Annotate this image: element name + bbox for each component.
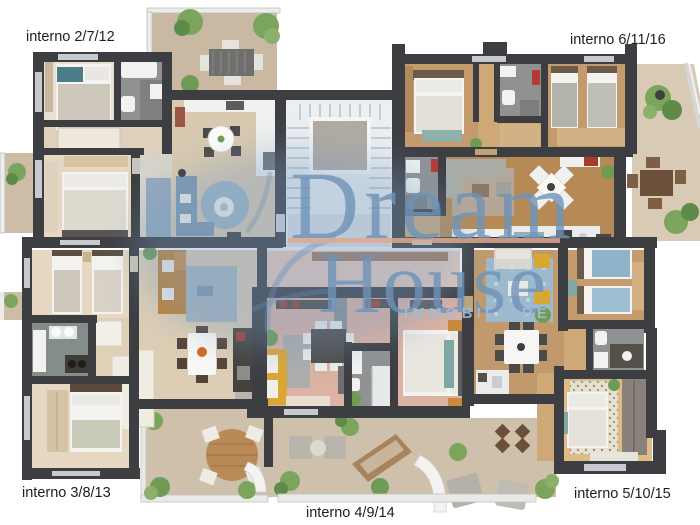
svg-text:interno 3/8/13: interno 3/8/13 xyxy=(22,485,111,501)
svg-text:interno 4/9/14: interno 4/9/14 xyxy=(306,505,395,521)
svg-text:interno 5/10/15: interno 5/10/15 xyxy=(574,486,671,502)
svg-text:IMMOBILIARE: IMMOBILIARE xyxy=(404,305,551,322)
svg-text:interno 6/11/16: interno 6/11/16 xyxy=(570,32,666,48)
svg-text:interno 2/7/12: interno 2/7/12 xyxy=(26,29,115,45)
